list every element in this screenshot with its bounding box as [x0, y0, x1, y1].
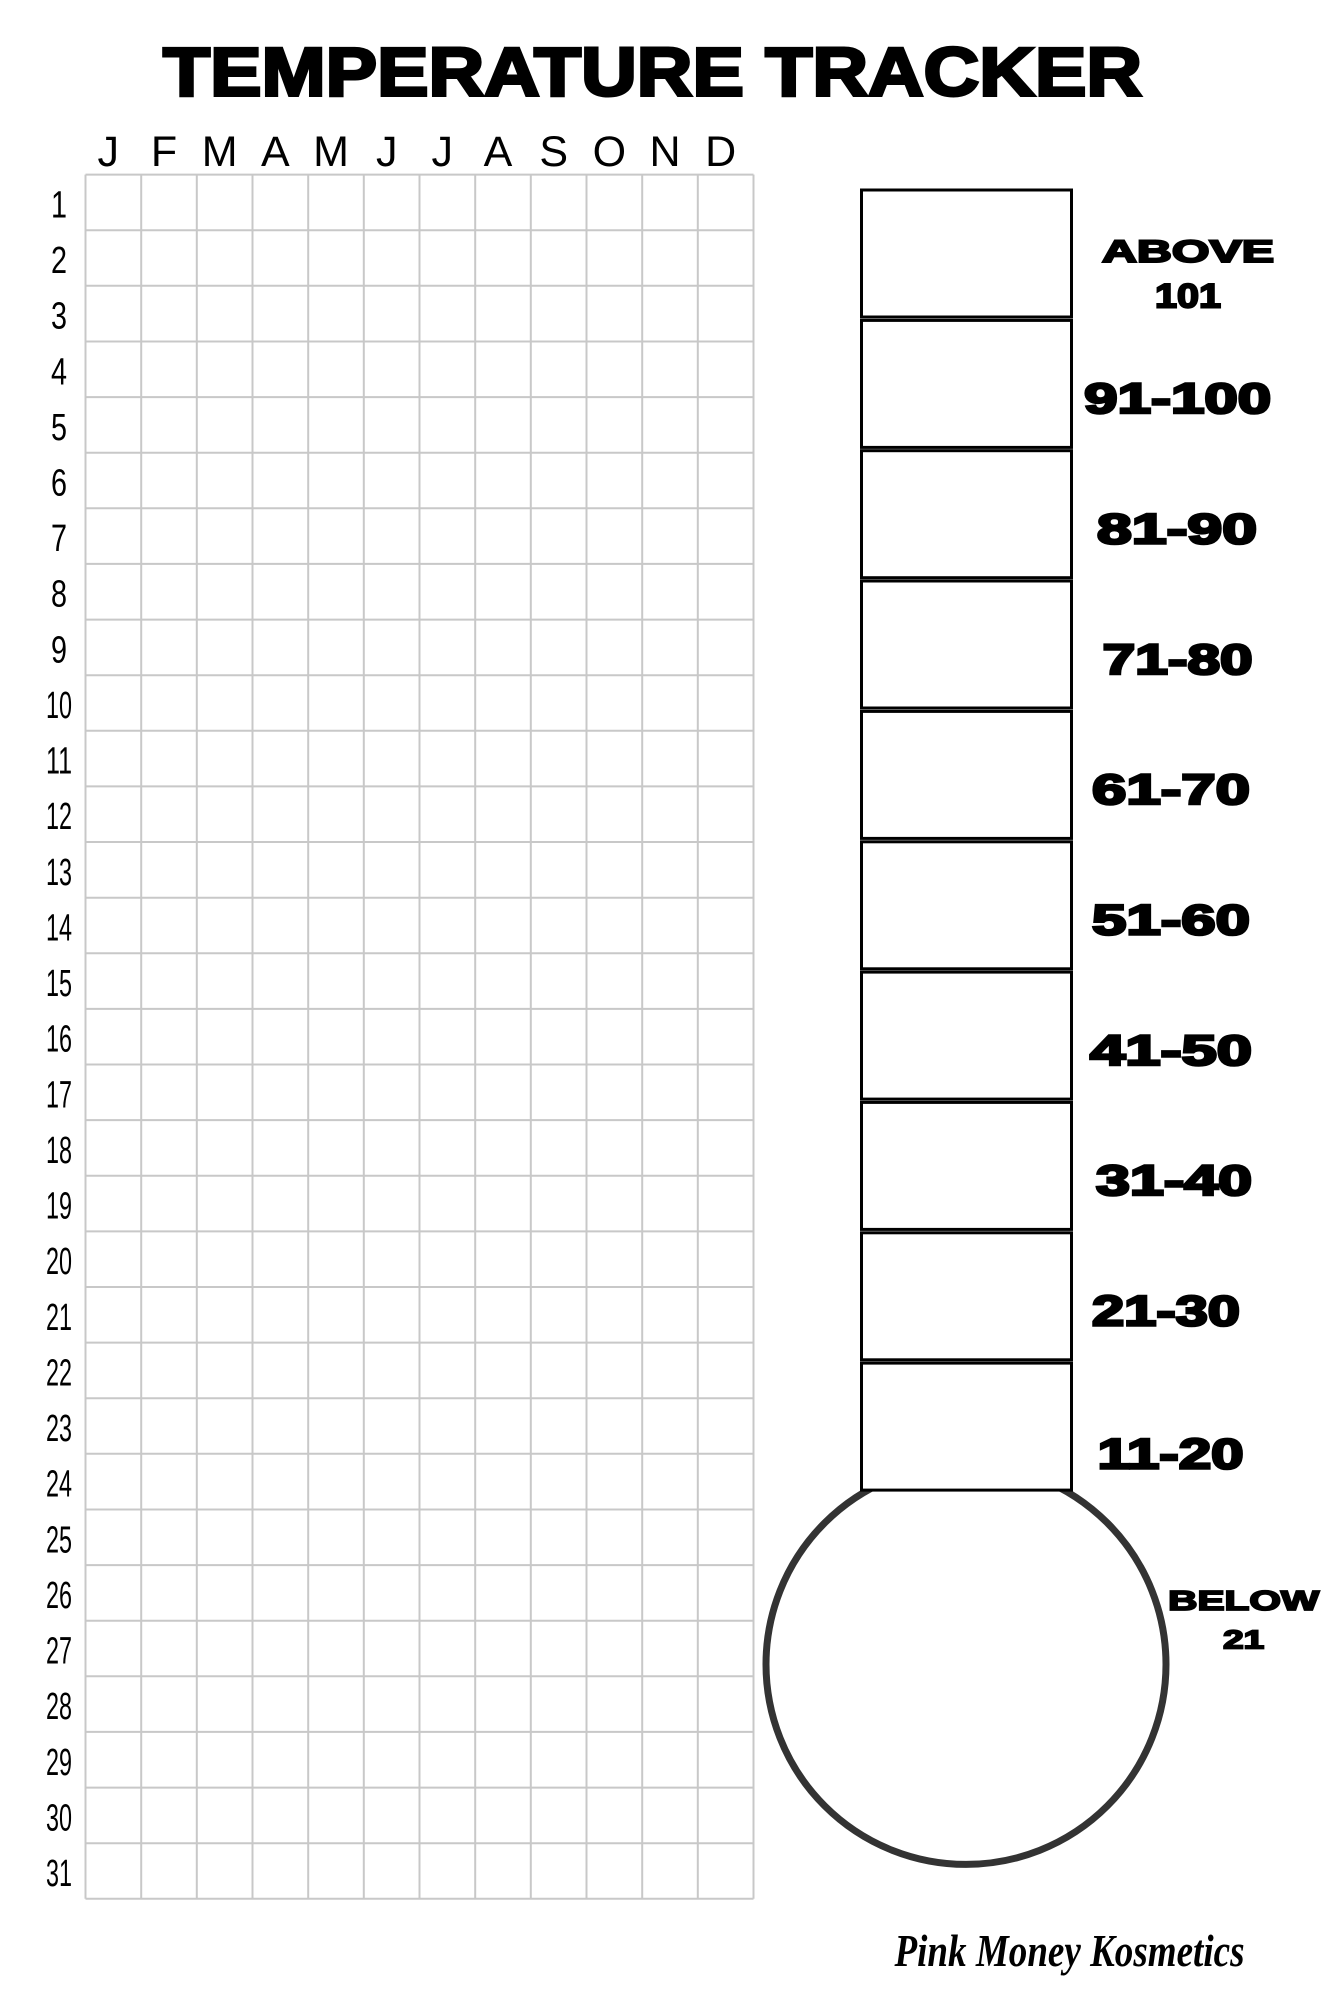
- svg-text:N: N: [649, 128, 680, 176]
- svg-text:4: 4: [51, 351, 67, 393]
- svg-text:11-20: 11-20: [1098, 1431, 1244, 1479]
- svg-text:10: 10: [46, 685, 72, 727]
- svg-text:22: 22: [46, 1352, 72, 1394]
- svg-text:23: 23: [46, 1408, 72, 1450]
- svg-text:3: 3: [51, 296, 67, 338]
- svg-text:51-60: 51-60: [1092, 897, 1250, 945]
- svg-text:F: F: [151, 128, 177, 176]
- svg-text:5: 5: [51, 407, 67, 449]
- svg-text:11: 11: [46, 741, 72, 783]
- svg-text:BELOW: BELOW: [1168, 1585, 1320, 1616]
- svg-text:20: 20: [46, 1241, 72, 1283]
- svg-text:25: 25: [46, 1519, 72, 1561]
- svg-text:31: 31: [46, 1853, 72, 1895]
- svg-text:21: 21: [1223, 1626, 1264, 1654]
- svg-text:15: 15: [46, 963, 72, 1005]
- svg-text:31-40: 31-40: [1096, 1157, 1252, 1205]
- svg-text:21: 21: [46, 1297, 72, 1339]
- svg-text:J: J: [432, 128, 454, 176]
- svg-text:A: A: [484, 128, 513, 176]
- svg-text:26: 26: [46, 1575, 72, 1617]
- svg-text:8: 8: [51, 574, 67, 616]
- svg-text:O: O: [593, 128, 626, 176]
- svg-text:17: 17: [46, 1074, 72, 1116]
- svg-text:30: 30: [46, 1797, 72, 1839]
- svg-text:Pink Money Kosmetics: Pink Money Kosmetics: [894, 1925, 1245, 1976]
- svg-text:J: J: [98, 128, 120, 176]
- svg-text:41-50: 41-50: [1090, 1027, 1252, 1075]
- svg-text:6: 6: [51, 463, 67, 505]
- svg-text:ABOVE: ABOVE: [1102, 233, 1274, 269]
- svg-text:13: 13: [46, 852, 72, 894]
- svg-text:M: M: [202, 128, 238, 176]
- svg-text:61-70: 61-70: [1092, 766, 1250, 814]
- svg-text:TEMPERATURE TRACKER: TEMPERATURE TRACKER: [163, 34, 1142, 111]
- svg-text:19: 19: [46, 1186, 72, 1228]
- svg-text:1: 1: [51, 184, 67, 226]
- svg-text:J: J: [376, 128, 398, 176]
- svg-text:14: 14: [46, 908, 72, 950]
- svg-text:27: 27: [46, 1631, 72, 1673]
- svg-text:29: 29: [46, 1742, 72, 1784]
- svg-text:2: 2: [51, 240, 67, 282]
- svg-text:28: 28: [46, 1686, 72, 1728]
- svg-text:71-80: 71-80: [1103, 636, 1253, 684]
- svg-text:24: 24: [46, 1464, 72, 1506]
- svg-text:A: A: [261, 128, 290, 176]
- svg-text:101: 101: [1155, 277, 1221, 315]
- svg-text:12: 12: [46, 796, 72, 838]
- svg-text:D: D: [705, 128, 736, 176]
- svg-text:S: S: [539, 128, 568, 176]
- svg-text:M: M: [313, 128, 349, 176]
- svg-text:7: 7: [51, 518, 67, 560]
- svg-text:91-100: 91-100: [1084, 375, 1271, 423]
- svg-text:9: 9: [51, 629, 67, 671]
- svg-text:18: 18: [46, 1130, 72, 1172]
- svg-text:21-30: 21-30: [1092, 1288, 1240, 1336]
- svg-text:81-90: 81-90: [1097, 505, 1257, 553]
- svg-text:16: 16: [46, 1019, 72, 1061]
